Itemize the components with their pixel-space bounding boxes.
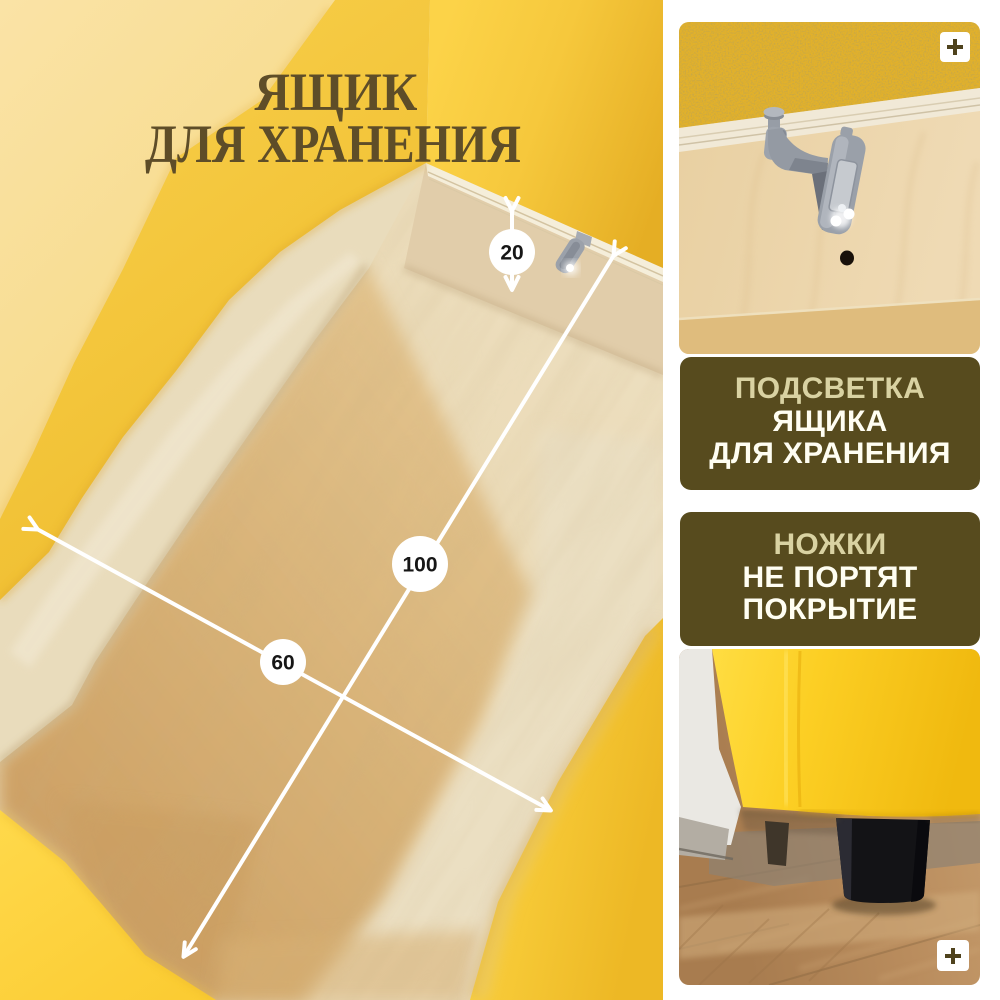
- svg-text:ЯЩИК: ЯЩИК: [255, 62, 418, 122]
- svg-text:100: 100: [402, 554, 437, 577]
- svg-text:20: 20: [500, 242, 523, 265]
- svg-text:ДЛЯ ХРАНЕНИЯ: ДЛЯ ХРАНЕНИЯ: [145, 114, 521, 174]
- svg-text:60: 60: [271, 652, 294, 675]
